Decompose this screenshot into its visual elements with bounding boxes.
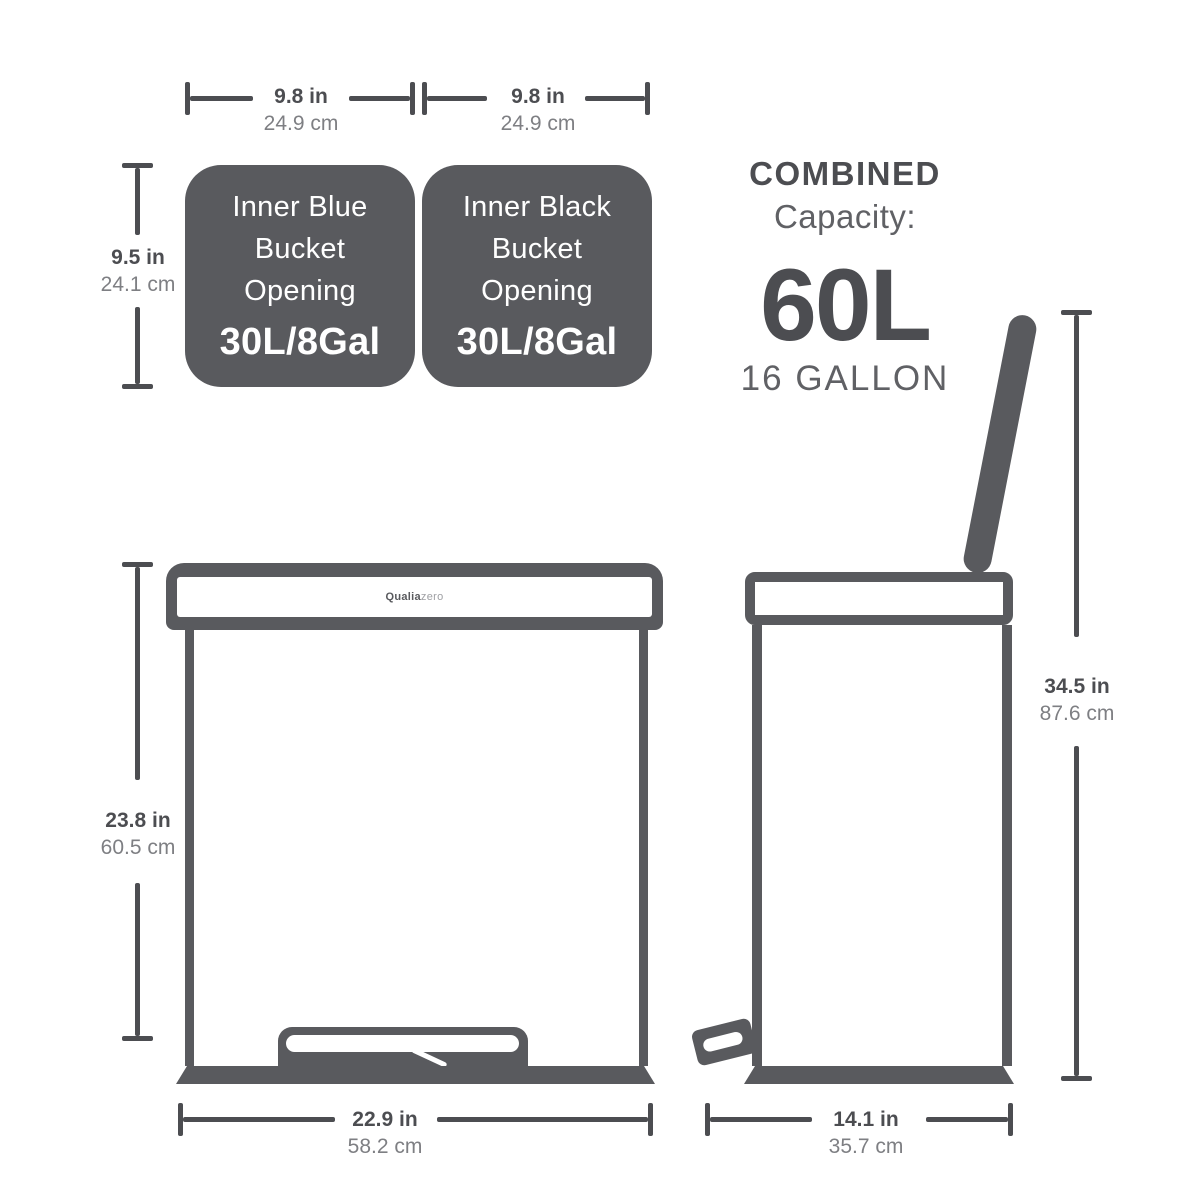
dim-line — [135, 168, 140, 235]
combined-title: COMBINED — [741, 153, 950, 195]
inches-value: 9.8 in — [501, 83, 576, 110]
dim-line — [710, 1117, 812, 1122]
dim-line — [135, 883, 140, 1036]
bucket-right-line2: Bucket — [492, 228, 582, 270]
cm-value: 24.9 cm — [264, 110, 339, 137]
brand-light: zero — [421, 591, 444, 603]
brand-bold: Qualia — [385, 591, 420, 603]
dim-label: 34.5 in 87.6 cm — [1040, 673, 1115, 727]
front-base — [176, 1066, 655, 1084]
side-open-lid — [961, 313, 1038, 576]
inches-value: 9.5 in — [101, 244, 176, 271]
dim-cap — [1061, 1076, 1092, 1081]
dim-label: 9.5 in 24.1 cm — [101, 244, 176, 298]
cm-value: 60.5 cm — [101, 834, 176, 861]
bucket-right-line1: Inner Black — [463, 186, 611, 228]
side-base — [744, 1066, 1014, 1084]
dim-cap — [1008, 1103, 1013, 1136]
dim-line — [1074, 746, 1079, 1076]
front-lid: Qualiazero — [166, 563, 663, 630]
dimension-diagram: 9.8 in 24.9 cm 9.8 in 24.9 cm 9.5 in 24.… — [0, 0, 1200, 1200]
bucket-left-line1: Inner Blue — [232, 186, 367, 228]
dim-label: 14.1 in 35.7 cm — [829, 1106, 904, 1160]
dim-label: 9.8 in 24.9 cm — [264, 83, 339, 137]
dim-cap — [410, 82, 415, 115]
cm-value: 24.1 cm — [101, 271, 176, 298]
dim-cap — [648, 1103, 653, 1136]
dim-cap — [122, 384, 153, 389]
combined-subtitle: Capacity: — [741, 195, 950, 239]
inches-value: 22.9 in — [348, 1106, 423, 1133]
bucket-right-panel: Inner Black Bucket Opening 30L/8Gal — [422, 165, 652, 387]
brand-logo: Qualiazero — [385, 591, 443, 603]
side-pedal-slot — [702, 1031, 744, 1053]
bucket-right-line3: Opening — [481, 270, 593, 312]
dim-line — [190, 96, 253, 101]
front-pedal-strip — [286, 1035, 519, 1052]
combined-gallons: 16 GALLON — [741, 357, 950, 401]
cm-value: 35.7 cm — [829, 1133, 904, 1160]
side-rim — [745, 572, 1013, 625]
inches-value: 23.8 in — [101, 807, 176, 834]
bucket-left-panel: Inner Blue Bucket Opening 30L/8Gal — [185, 165, 415, 387]
front-lid-strip: Qualiazero — [177, 577, 652, 617]
inches-value: 9.8 in — [264, 83, 339, 110]
dim-line — [135, 567, 140, 780]
side-pedal — [691, 1017, 758, 1066]
bucket-left-line2: Bucket — [255, 228, 345, 270]
dim-label: 9.8 in 24.9 cm — [501, 83, 576, 137]
dim-line — [183, 1117, 335, 1122]
dim-line — [349, 96, 410, 101]
front-body — [185, 630, 648, 1066]
side-body — [752, 625, 1012, 1066]
dim-cap — [645, 82, 650, 115]
combined-capacity-block: COMBINED Capacity: 60L 16 GALLON — [741, 153, 950, 401]
dim-label: 22.9 in 58.2 cm — [348, 1106, 423, 1160]
dim-line — [585, 96, 645, 101]
bucket-left-capacity: 30L/8Gal — [220, 318, 381, 366]
bucket-left-line3: Opening — [244, 270, 356, 312]
cm-value: 24.9 cm — [501, 110, 576, 137]
dim-line — [437, 1117, 648, 1122]
inches-value: 34.5 in — [1040, 673, 1115, 700]
dim-line — [135, 307, 140, 384]
cm-value: 58.2 cm — [348, 1133, 423, 1160]
combined-value: 60L — [741, 253, 950, 357]
dim-label: 23.8 in 60.5 cm — [101, 807, 176, 861]
dim-cap — [122, 1036, 153, 1041]
dim-line — [427, 96, 487, 101]
inches-value: 14.1 in — [829, 1106, 904, 1133]
dim-line — [926, 1117, 1008, 1122]
dim-line — [1074, 315, 1079, 637]
bucket-right-capacity: 30L/8Gal — [457, 318, 618, 366]
cm-value: 87.6 cm — [1040, 700, 1115, 727]
